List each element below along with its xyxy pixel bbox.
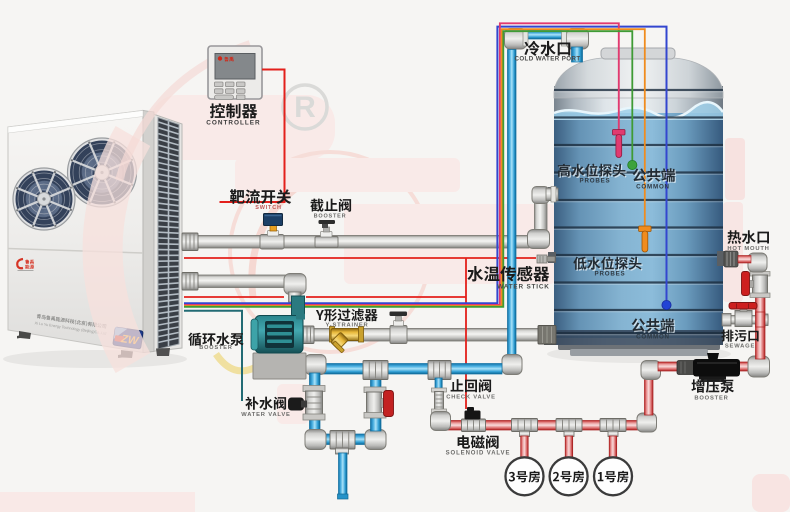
svg-text:CONTROLLER: CONTROLLER — [206, 120, 260, 127]
svg-text:R: R — [294, 91, 316, 124]
svg-text:BOOSTER: BOOSTER — [694, 396, 728, 402]
svg-text:BOOSTER: BOOSTER — [314, 214, 347, 220]
svg-text:BOOSTER: BOOSTER — [199, 345, 233, 351]
svg-text:HOT MOUTH: HOT MOUTH — [727, 246, 769, 252]
svg-text:Y-STRAINER: Y-STRAINER — [325, 323, 368, 329]
svg-text:WATER STICK: WATER STICK — [497, 284, 549, 291]
svg-text:SWITCH: SWITCH — [255, 205, 282, 211]
svg-text:WATER VALVE: WATER VALVE — [241, 412, 290, 418]
svg-text:COLD WATER PORT: COLD WATER PORT — [514, 56, 580, 63]
svg-text:PROBES: PROBES — [595, 271, 626, 278]
svg-text:COMMON: COMMON — [636, 334, 670, 341]
svg-text:SEWAGE: SEWAGE — [725, 344, 755, 350]
svg-text:COMMON: COMMON — [636, 184, 670, 191]
svg-text:SOLENOID VALVE: SOLENOID VALVE — [446, 451, 511, 457]
svg-text:CHECK VALVE: CHECK VALVE — [446, 395, 496, 401]
svg-text:PROBES: PROBES — [580, 178, 611, 185]
